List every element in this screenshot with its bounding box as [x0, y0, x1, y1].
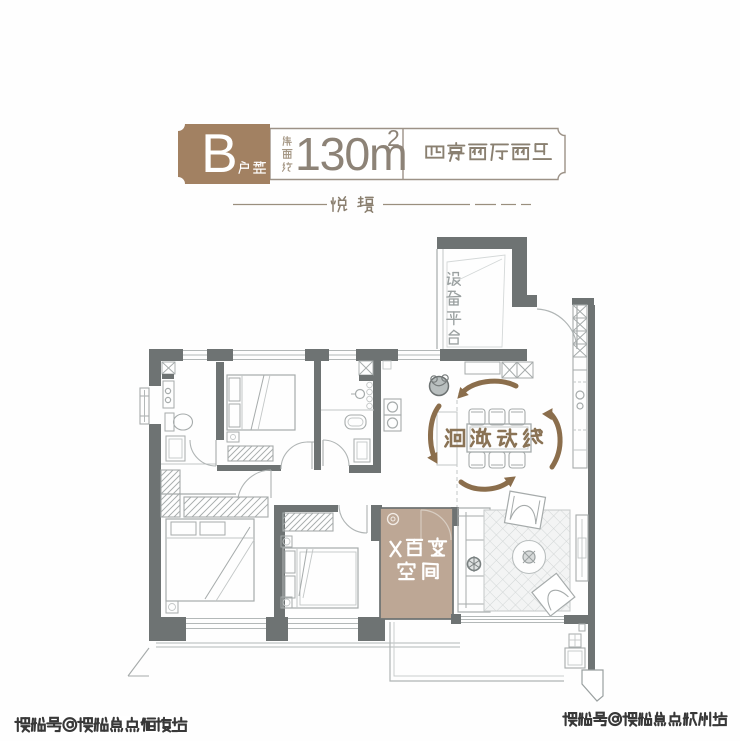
svg-text:2: 2: [387, 125, 400, 151]
svg-text:B: B: [201, 122, 238, 184]
